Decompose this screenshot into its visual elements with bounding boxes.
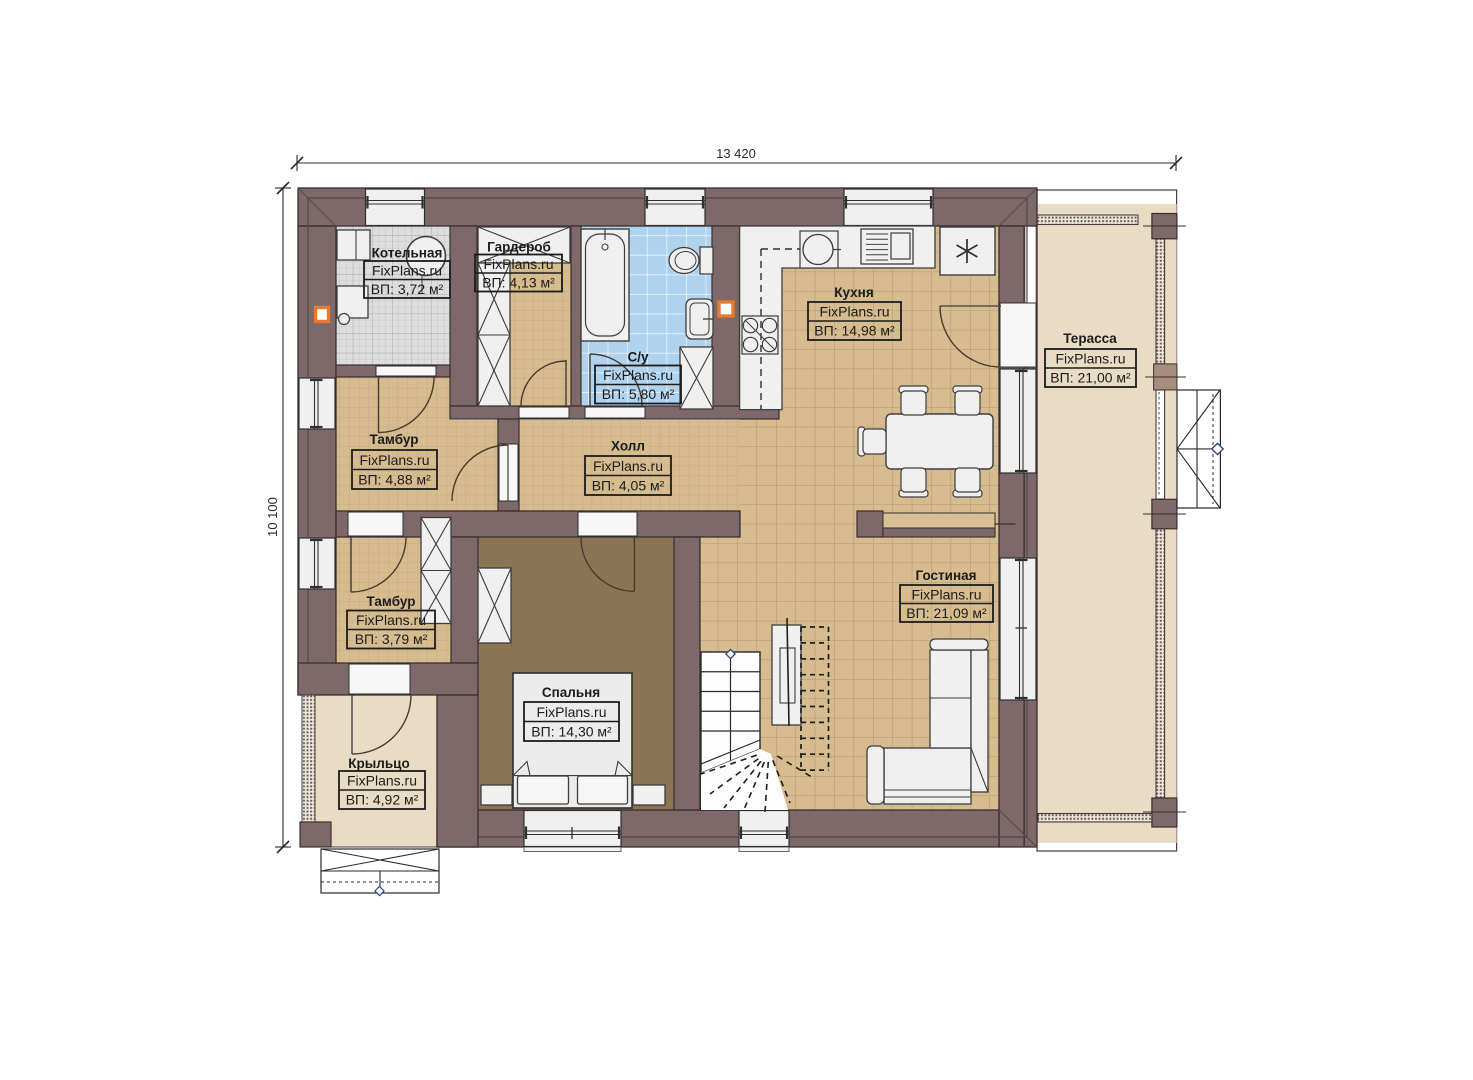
svg-text:Тамбур: Тамбур xyxy=(370,432,419,447)
svg-text:С/у: С/у xyxy=(627,350,649,365)
svg-text:ВП: 5,80 м²: ВП: 5,80 м² xyxy=(602,386,675,402)
svg-text:FixPlans.ru: FixPlans.ru xyxy=(593,458,663,474)
svg-text:Холл: Холл xyxy=(611,439,645,454)
svg-text:ВП: 4,05 м²: ВП: 4,05 м² xyxy=(592,477,665,493)
svg-text:13 420: 13 420 xyxy=(716,146,756,161)
svg-text:Спальня: Спальня xyxy=(542,685,600,700)
svg-text:10 100: 10 100 xyxy=(265,497,280,537)
svg-text:Котельная: Котельная xyxy=(372,246,443,261)
svg-text:FixPlans.ru: FixPlans.ru xyxy=(1055,351,1125,367)
svg-text:ВП: 21,09 м²: ВП: 21,09 м² xyxy=(906,605,987,621)
svg-text:FixPlans.ru: FixPlans.ru xyxy=(483,256,553,272)
svg-text:ВП: 3,72 м²: ВП: 3,72 м² xyxy=(371,281,444,297)
svg-text:ВП: 14,98 м²: ВП: 14,98 м² xyxy=(814,323,895,339)
svg-text:FixPlans.ru: FixPlans.ru xyxy=(356,612,426,628)
svg-text:FixPlans.ru: FixPlans.ru xyxy=(359,452,429,468)
svg-text:FixPlans.ru: FixPlans.ru xyxy=(536,704,606,720)
svg-text:Кухня: Кухня xyxy=(834,285,873,300)
svg-text:Гардероб: Гардероб xyxy=(487,240,551,255)
svg-text:FixPlans.ru: FixPlans.ru xyxy=(603,367,673,383)
svg-text:Тамбур: Тамбур xyxy=(367,594,416,609)
svg-text:FixPlans.ru: FixPlans.ru xyxy=(819,304,889,320)
svg-text:ВП: 3,79 м²: ВП: 3,79 м² xyxy=(355,631,428,647)
svg-text:ВП: 4,92 м²: ВП: 4,92 м² xyxy=(346,792,419,808)
svg-text:ВП: 4,13 м²: ВП: 4,13 м² xyxy=(482,274,555,290)
svg-text:FixPlans.ru: FixPlans.ru xyxy=(347,773,417,789)
svg-text:Гостиная: Гостиная xyxy=(915,568,976,583)
svg-text:ВП: 4,88 м²: ВП: 4,88 м² xyxy=(358,471,431,487)
svg-text:ВП: 14,30 м²: ВП: 14,30 м² xyxy=(531,723,612,739)
svg-text:Терасса: Терасса xyxy=(1063,331,1117,346)
svg-text:FixPlans.ru: FixPlans.ru xyxy=(372,262,442,278)
svg-text:FixPlans.ru: FixPlans.ru xyxy=(911,586,981,602)
svg-text:ВП: 21,00 м²: ВП: 21,00 м² xyxy=(1050,370,1131,386)
svg-text:Крыльцо: Крыльцо xyxy=(348,756,409,771)
